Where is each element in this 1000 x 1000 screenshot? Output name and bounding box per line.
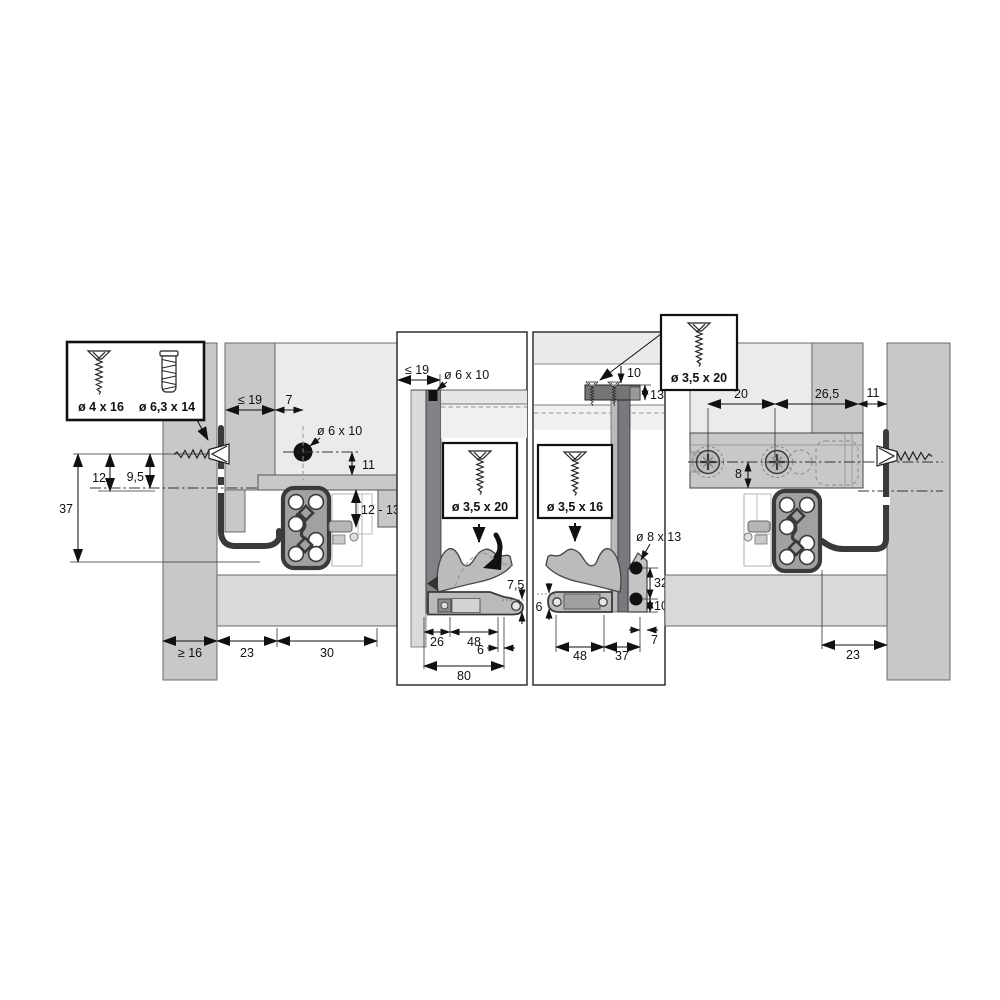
front-section-view: ø 3,5 x 20 ≤ 19 ø 6 x 10 7,5 26 48: [397, 332, 527, 685]
dimension-label: ø 8 x 13: [636, 530, 681, 544]
latch-front-view: [744, 494, 771, 566]
dimension-label: 7: [651, 633, 658, 647]
screw-spec-label: ø 6,3 x 14: [139, 400, 195, 414]
runner-base: [548, 592, 612, 612]
rear-bracket-front-view: [690, 433, 863, 488]
dimension-label: 23: [846, 648, 860, 662]
hook-hole: [630, 593, 643, 606]
dowel-hole-section: [429, 390, 438, 401]
cabinet-side-section: [411, 390, 426, 647]
dimension-label: ≤ 19: [405, 363, 429, 377]
dimension-label: 6: [536, 600, 543, 614]
technical-drawing: ø 4 x 16 ø 6,3 x 14 ≤ 19 7 ø 6 x 10 11 1…: [0, 0, 1000, 1000]
hook-hole: [630, 562, 643, 575]
screw-spec-label: ø 3,5 x 20: [452, 500, 508, 514]
screw-callout-box: ø 3,5 x 16: [538, 445, 612, 518]
dimension-label: 80: [457, 669, 471, 683]
dimension-label: 11: [362, 458, 375, 472]
screw-callout-box: ø 3,5 x 20: [443, 443, 517, 518]
cabinet-side-panel-right: [887, 343, 950, 680]
left-front-view: ø 4 x 16 ø 6,3 x 14 ≤ 19 7 ø 6 x 10 11 1…: [59, 342, 400, 680]
dimension-label: 12: [92, 471, 106, 485]
dimension-label: ø 6 x 10: [317, 424, 362, 438]
dimension-label: 8: [735, 467, 742, 481]
dimension-label: 26: [430, 635, 444, 649]
dimension-label: 7: [286, 393, 293, 407]
drawer-front-face: [275, 343, 397, 475]
dimension-label: 26,5: [815, 387, 839, 401]
rear-section-view: ø 3,5 x 16 10 13 ø 8 x 13 32 10 6: [533, 332, 681, 685]
dimension-label: 12 - 13: [361, 503, 400, 517]
dimension-label: ≤ 19: [238, 393, 262, 407]
dimension-label: 23: [240, 646, 254, 660]
dimension-label: 6: [477, 643, 484, 657]
dimension-label: ≥ 16: [178, 646, 202, 660]
dimension-label: 9,5: [127, 470, 144, 484]
dimension-label: 11: [867, 386, 880, 400]
cabinet-bottom-panel-right: [665, 575, 887, 626]
right-front-view: 20 26,5 11 8 23: [665, 343, 950, 680]
dimension-label: 10: [627, 366, 641, 380]
dimension-label: 37: [615, 649, 629, 663]
drawer-front-panel: [225, 343, 275, 490]
dimension-label: ø 6 x 10: [444, 368, 489, 382]
drawer-runner-mounting-diagram: ø 4 x 16 ø 6,3 x 14 ≤ 19 7 ø 6 x 10 11 1…: [0, 0, 1000, 1000]
dimension-label: 37: [59, 502, 73, 516]
drawer-top-rail: [258, 475, 397, 490]
screw-spec-label: ø 3,5 x 16: [547, 500, 603, 514]
cabinet-bottom-panel-left: [217, 575, 397, 626]
screw-spec-label: ø 4 x 16: [78, 400, 124, 414]
screw-spec-label: ø 3,5 x 20: [671, 371, 727, 385]
dimension-label: 48: [573, 649, 587, 663]
dimension-label: 30: [320, 646, 334, 660]
